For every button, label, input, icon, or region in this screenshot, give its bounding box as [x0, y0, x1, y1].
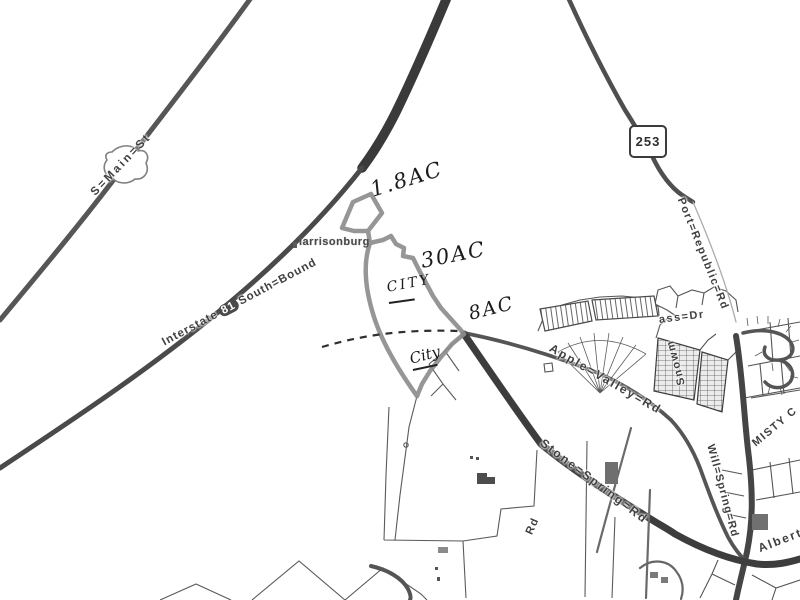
- route-253-number: 253: [636, 134, 661, 149]
- harrisonburg-marker: [293, 242, 297, 248]
- route-253-shield: 253: [629, 125, 667, 158]
- townhouse-blocks: [654, 338, 728, 412]
- road-interstate-81: [0, 168, 362, 468]
- road-cross-street-2: [646, 490, 650, 598]
- harrisonburg-place-label: larrisonburg: [299, 236, 370, 248]
- road-will-spring: [671, 420, 749, 564]
- road-bottom-curve: [371, 566, 411, 600]
- subject-parcel-outline: [342, 194, 464, 396]
- parcel-lines-center: [160, 334, 615, 600]
- road-misty-loop: [743, 331, 793, 388]
- scanned-parcel-map: S=Main=St Interstate81South=Bound 253 Po…: [0, 0, 800, 600]
- striped-parcel-rows: [540, 296, 658, 331]
- road-interstate-81-thick: [362, 0, 448, 168]
